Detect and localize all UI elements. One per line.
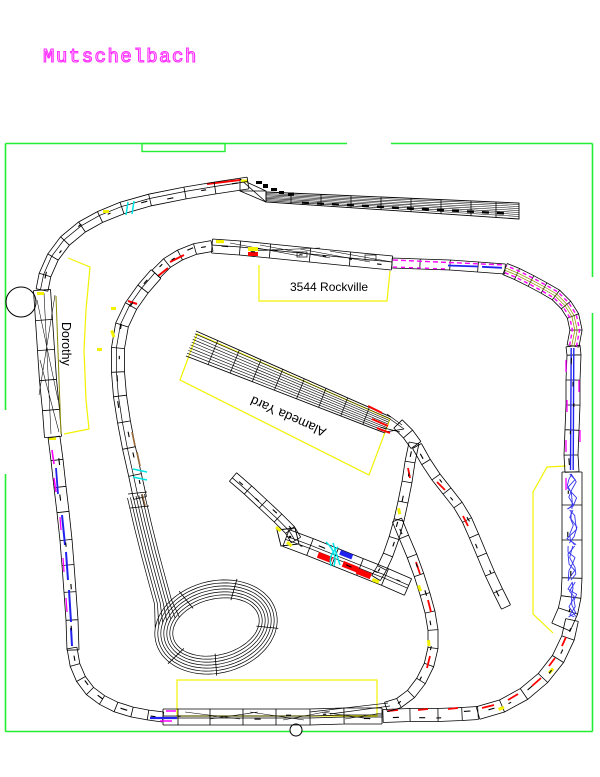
svg-text:Mutschelbach: Mutschelbach xyxy=(43,46,198,68)
svg-text:Dorothy: Dorothy xyxy=(59,322,73,367)
svg-text:3544 Rockville: 3544 Rockville xyxy=(290,280,368,294)
